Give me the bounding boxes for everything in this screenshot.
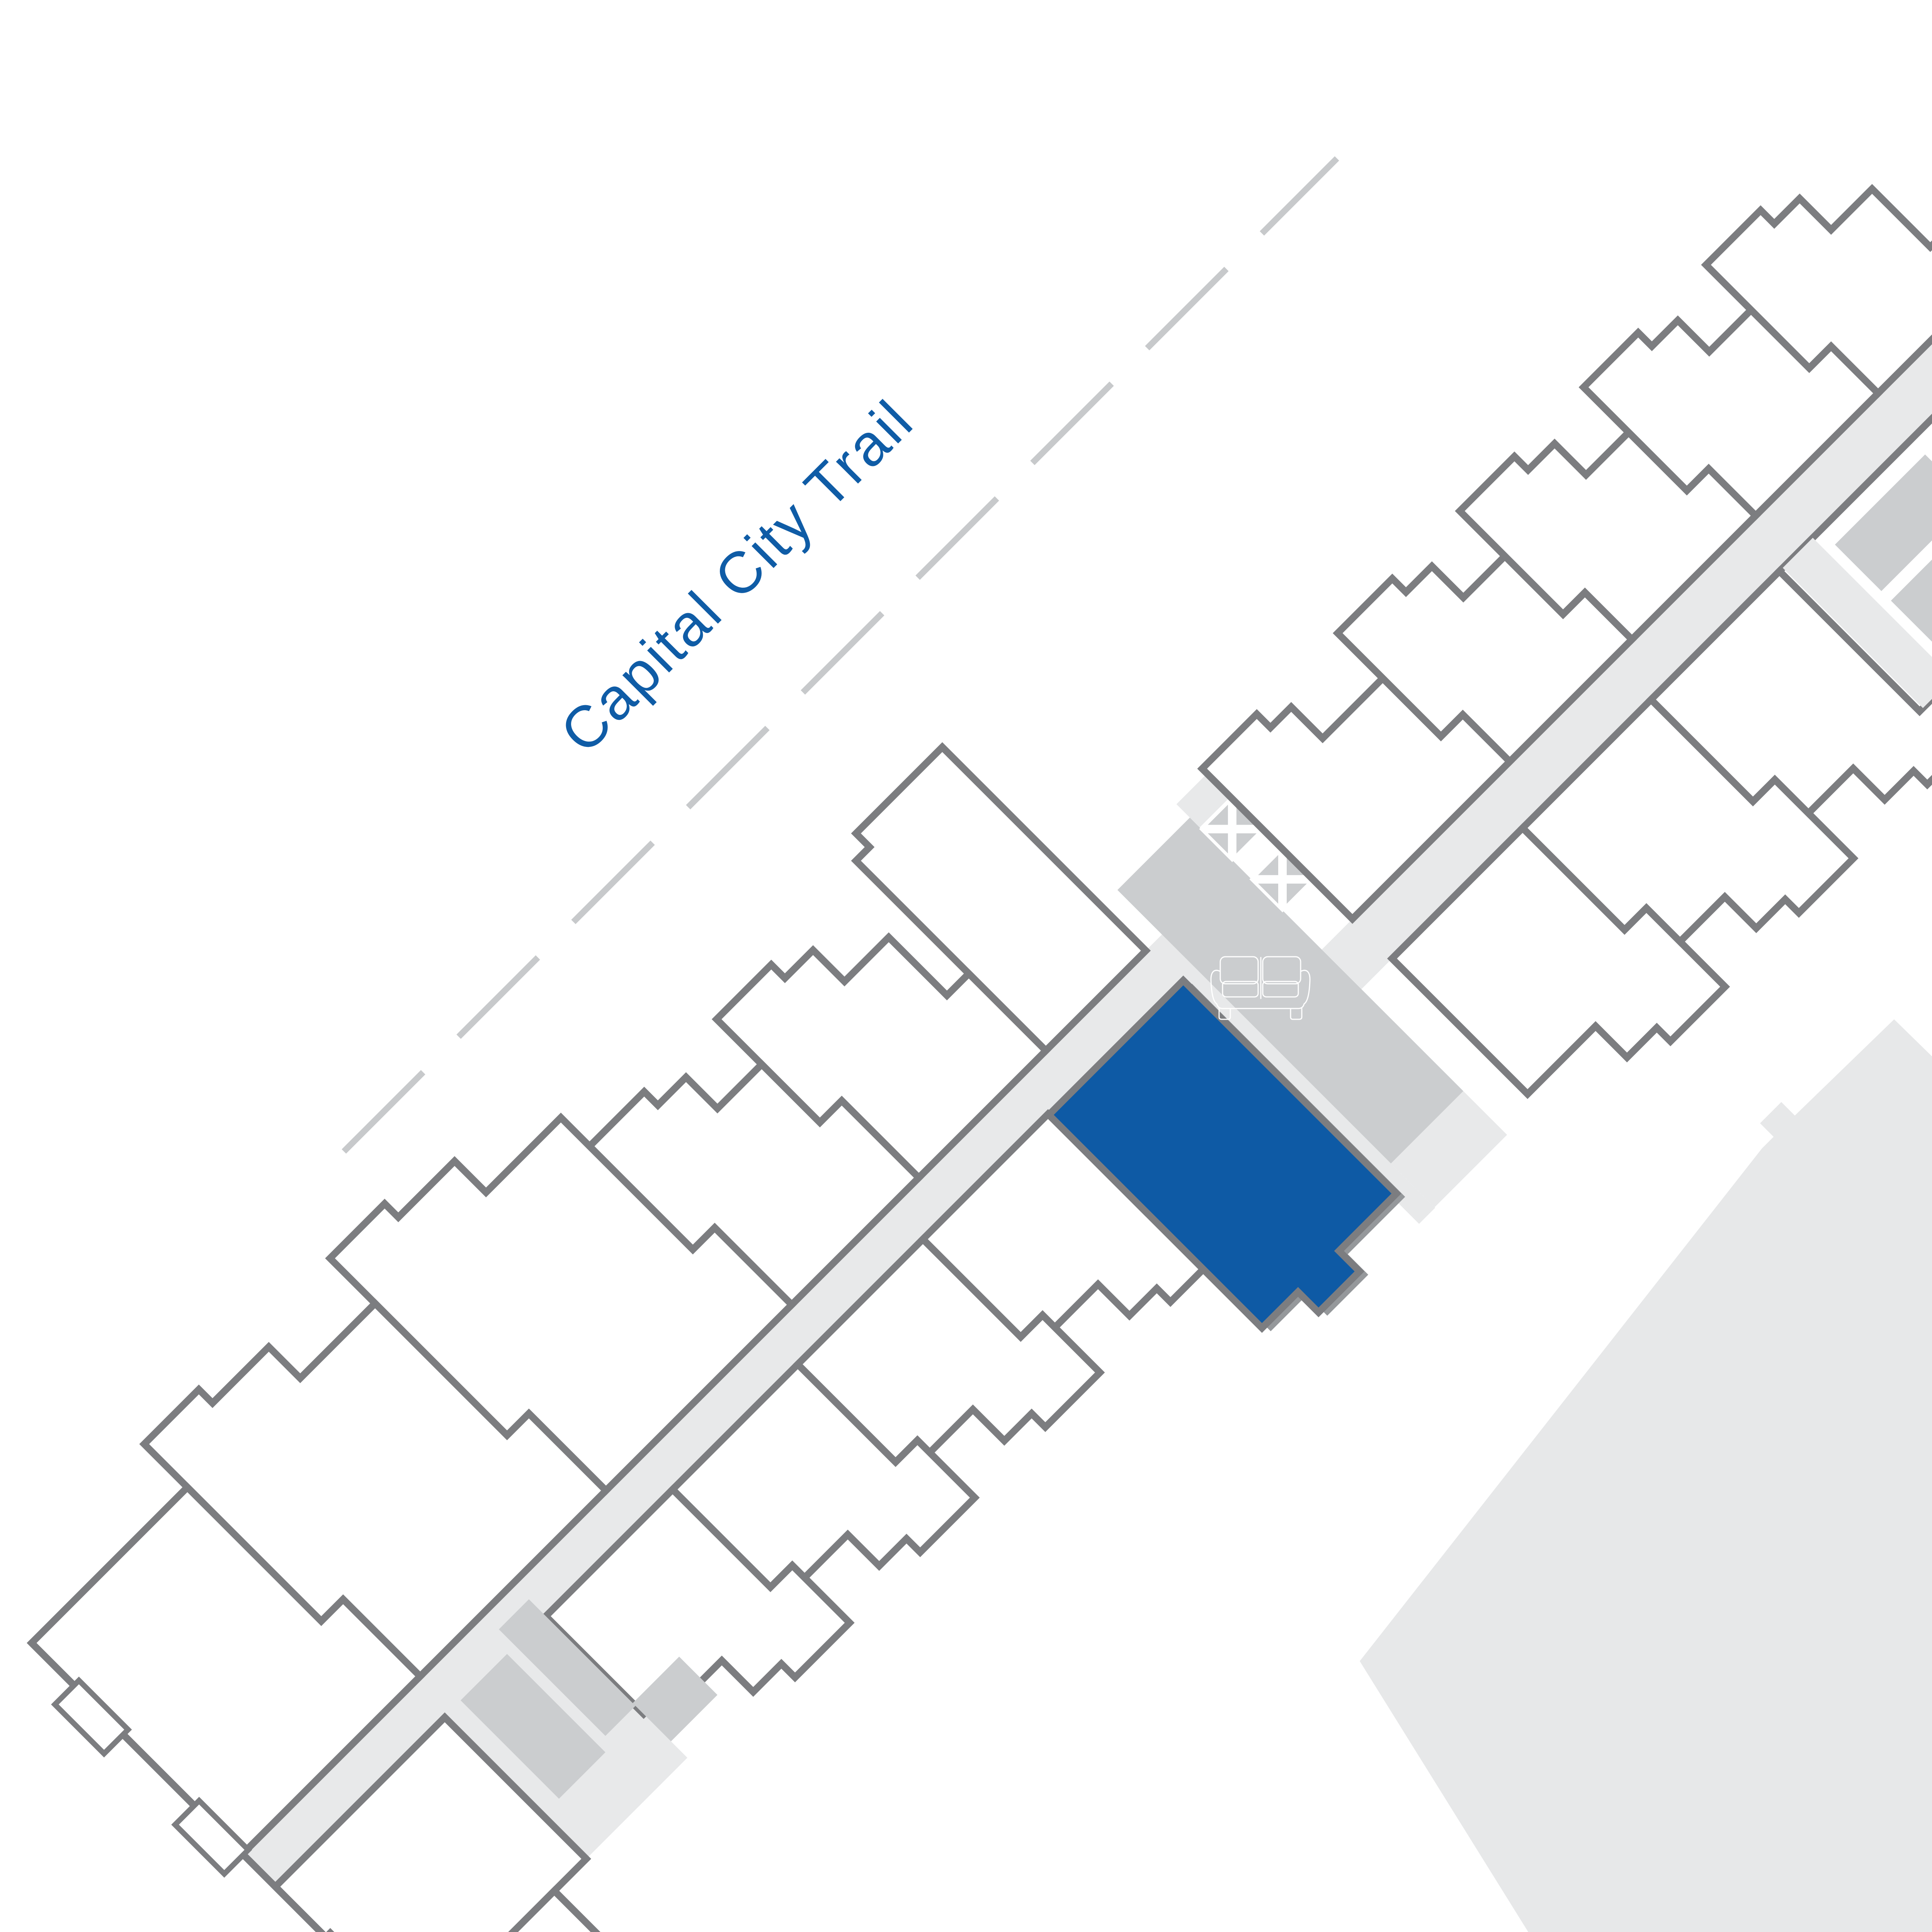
svg-text:Capital City Trail: Capital City Trail [548,387,926,765]
